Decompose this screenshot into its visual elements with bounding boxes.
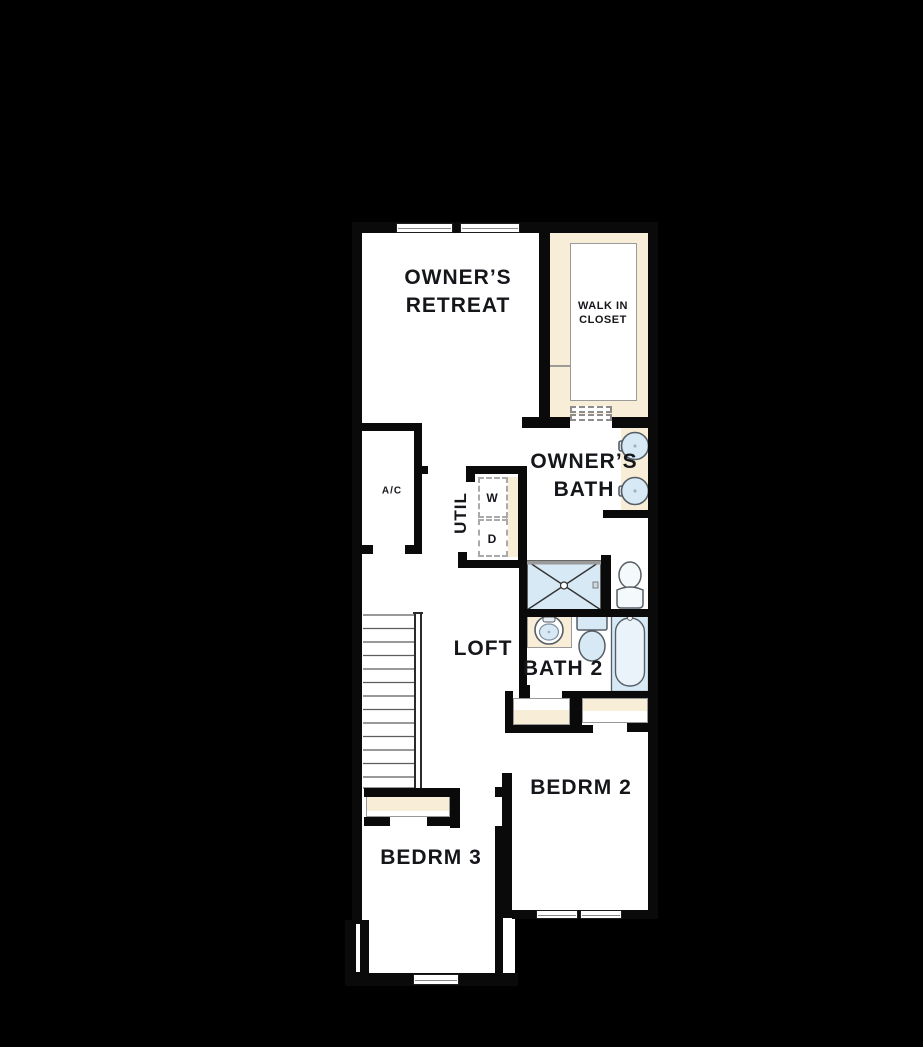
- water-closet-toilet-icon: [612, 560, 650, 612]
- wall: [519, 609, 648, 617]
- wall: [414, 423, 422, 553]
- room-label-bedroom2: BEDRM 2: [530, 774, 632, 802]
- wall: [519, 685, 530, 698]
- bathtub-icon: [611, 611, 649, 692]
- wall: [458, 560, 527, 568]
- wall: [522, 417, 570, 428]
- closet-door-dashed: [570, 406, 612, 413]
- washer-label: W: [486, 491, 497, 505]
- wall: [458, 552, 467, 568]
- wall: [603, 510, 648, 518]
- wall: [648, 222, 658, 919]
- wall: [495, 826, 503, 976]
- dryer-label: D: [488, 532, 497, 546]
- window: [580, 910, 622, 919]
- window: [396, 223, 453, 233]
- wall: [466, 466, 475, 482]
- wall: [358, 423, 422, 431]
- room-label-loft: LOFT: [454, 635, 513, 663]
- wall: [420, 466, 428, 474]
- window: [460, 223, 520, 233]
- wall: [352, 222, 362, 922]
- wall: [495, 787, 503, 797]
- wall: [362, 545, 373, 554]
- wall: [427, 817, 460, 826]
- wall: [364, 817, 390, 826]
- room-label-bath2: BATH 2: [523, 655, 603, 683]
- room-label-util: UTIL: [451, 492, 471, 534]
- room-label-walk-in-closet: WALK IN CLOSET: [578, 299, 628, 327]
- closet-door-dashed: [570, 414, 612, 421]
- bedroom3-closet: [366, 795, 450, 817]
- wall: [570, 694, 582, 727]
- wall: [502, 773, 512, 918]
- walk-in-shower-icon: [527, 561, 601, 610]
- wall: [405, 545, 422, 554]
- wall: [518, 466, 527, 568]
- window: [536, 910, 578, 919]
- room-label-bedroom3: BEDRM 3: [380, 844, 482, 872]
- room-label-ac: A/C: [382, 486, 402, 497]
- window: [413, 974, 459, 985]
- wall: [364, 788, 460, 797]
- closet-shelf-line: [550, 365, 570, 367]
- wall: [539, 222, 550, 420]
- floor-plan: OWNER’S RETREAT WALK IN CLOSET OWNER’S B…: [0, 0, 923, 1047]
- side-window: [356, 924, 360, 972]
- wall: [612, 417, 658, 428]
- room-label-owners-retreat: OWNER’S RETREAT: [404, 264, 511, 320]
- staircase-icon: [363, 611, 423, 791]
- bath2-sink-icon: [530, 614, 570, 648]
- wall: [627, 723, 648, 732]
- floor-area-bedroom3: [352, 900, 515, 973]
- bedroom2-closet-right: [582, 698, 648, 723]
- bedroom2-closet-left: [513, 698, 570, 725]
- wall: [601, 555, 611, 613]
- room-label-owners-bath: OWNER’S BATH: [530, 448, 637, 504]
